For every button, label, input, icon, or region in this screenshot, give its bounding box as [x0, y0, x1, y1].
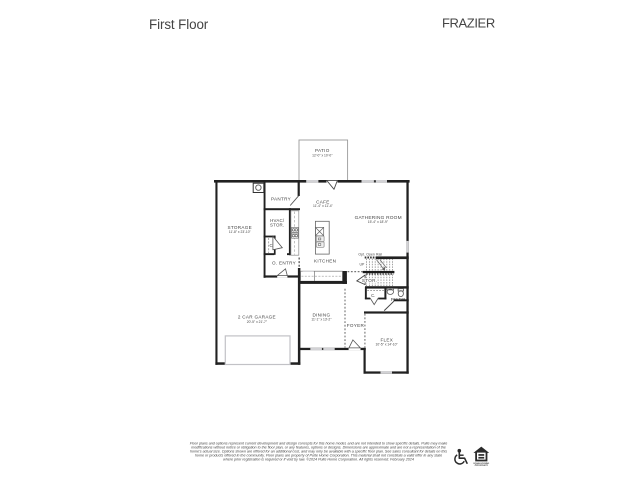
svg-text:STOR.: STOR.	[270, 223, 284, 228]
svg-text:FRAZIER: FRAZIER	[442, 16, 495, 31]
svg-text:where prior registration is re: where prior registration is required or …	[223, 458, 414, 462]
svg-text:11'-4" x 11'-4": 11'-4" x 11'-4"	[313, 204, 334, 208]
svg-text:10'-5" x 14'-10": 10'-5" x 14'-10"	[376, 342, 399, 346]
svg-text:OPPORTUNITY: OPPORTUNITY	[475, 465, 489, 467]
svg-text:PATIO: PATIO	[315, 148, 330, 153]
svg-text:PANTRY: PANTRY	[271, 196, 291, 201]
svg-text:UP: UP	[359, 262, 365, 266]
svg-text:First Floor: First Floor	[149, 17, 209, 32]
svg-text:11'-8" x 23'-10": 11'-8" x 23'-10"	[229, 230, 252, 234]
svg-text:Opt. Open Rail: Opt. Open Rail	[358, 253, 382, 257]
svg-text:FOYER: FOYER	[347, 323, 365, 328]
svg-text:KITCHEN: KITCHEN	[314, 258, 336, 263]
svg-text:O. ENTRY: O. ENTRY	[272, 261, 296, 266]
svg-text:C.: C.	[371, 293, 375, 298]
svg-text:12'-0" x 10'-0": 12'-0" x 10'-0"	[312, 153, 333, 157]
svg-text:STOR.: STOR.	[362, 278, 377, 283]
svg-text:11'-1" x 13'-2": 11'-1" x 13'-2"	[311, 318, 332, 322]
svg-text:15'-4" x 18'-9": 15'-4" x 18'-9"	[368, 220, 389, 224]
svg-text:2 CAR GARAGE: 2 CAR GARAGE	[238, 315, 276, 320]
svg-text:20'-5" x 21'-7": 20'-5" x 21'-7"	[247, 320, 268, 324]
